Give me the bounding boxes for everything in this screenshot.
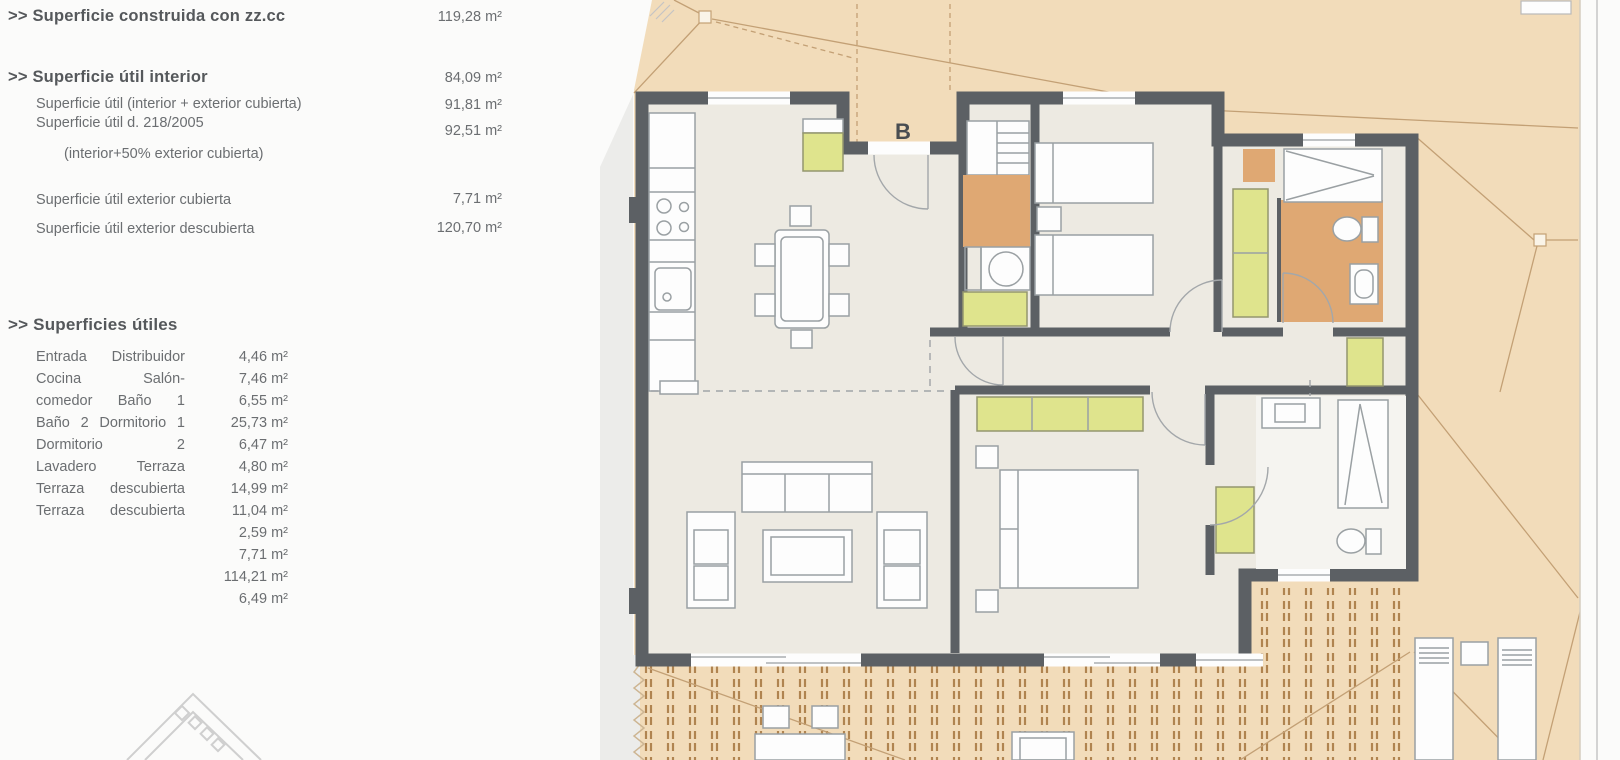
useful-areas-title: >> Superficies útiles	[8, 315, 178, 335]
roof-vertex-marker	[699, 11, 711, 23]
area-value: 6,47 m²	[170, 437, 288, 453]
kitchen	[649, 113, 695, 391]
row-label: (interior+50% exterior cubierta)	[64, 146, 263, 162]
chair	[812, 706, 838, 728]
area-value: 25,73 m²	[170, 415, 288, 431]
area-value: 7,71 m²	[170, 547, 288, 563]
area-value: 4,80 m²	[170, 459, 288, 475]
wardrobe	[977, 397, 1143, 431]
roof-skylight	[1521, 1, 1571, 14]
row-label: Superficie útil exterior descubierta	[36, 221, 254, 237]
chair	[791, 330, 812, 348]
row-label: Superficie útil exterior cubierta	[36, 192, 231, 208]
laundry	[963, 121, 1030, 326]
interior-title: >> Superficie útil interior	[8, 68, 208, 87]
surface-table: >> Superficie construida con zz.cc 119,2…	[0, 0, 560, 760]
area-value: 7,46 m²	[170, 371, 288, 387]
area-value: 4,46 m²	[170, 349, 288, 365]
sun-lounger	[1415, 638, 1453, 760]
double-bed	[1000, 470, 1138, 588]
row-label: Superficie útil (interior + exterior cub…	[36, 96, 302, 112]
wall-pier	[629, 197, 641, 223]
area-value: 2,59 m²	[170, 525, 288, 541]
area-label: Entrada Distribuidor	[36, 349, 185, 365]
chair	[829, 244, 849, 266]
chair	[790, 206, 811, 226]
entrance-letter: B	[895, 119, 911, 144]
closet	[967, 121, 1029, 175]
interior-value: 84,09 m²	[380, 70, 502, 86]
row-label: Superficie útil d. 218/2005	[36, 115, 204, 131]
row-value: 91,81 m²	[380, 97, 502, 113]
coffee-table	[763, 530, 852, 582]
toilet	[1337, 529, 1381, 554]
row-value: 120,70 m²	[380, 220, 502, 236]
row-value: 92,51 m²	[380, 123, 502, 139]
tv-bench	[660, 381, 698, 394]
nightstand	[1037, 207, 1061, 231]
side-table	[1461, 642, 1488, 665]
wardrobe	[963, 292, 1027, 326]
area-value: 6,55 m²	[170, 393, 288, 409]
outdoor-table	[755, 734, 845, 760]
wall-pier	[629, 588, 641, 614]
bidet	[1350, 264, 1378, 304]
area-label: Cocina Salón-	[36, 371, 185, 387]
area-value: 11,04 m²	[170, 503, 288, 519]
area-value: 114,21 m²	[170, 569, 288, 585]
vanity	[1262, 398, 1320, 428]
area-label: comedor Baño 1	[36, 393, 185, 409]
row-value: 7,71 m²	[380, 191, 502, 207]
area-label: Baño 2 Dormitorio 1	[36, 415, 185, 431]
area-label: Dormitorio 2	[36, 437, 185, 453]
area-value: 6,49 m²	[170, 591, 288, 607]
nightstand	[976, 590, 998, 612]
chair	[763, 706, 789, 728]
entry-closet	[803, 119, 843, 171]
wardrobe	[1347, 338, 1383, 386]
faint-corner-sketch	[115, 688, 275, 760]
area-value: 14,99 m²	[170, 481, 288, 497]
roof-vertex-marker	[1534, 234, 1546, 246]
sofa	[742, 462, 872, 512]
shower	[1284, 149, 1382, 202]
area-label: Terraza descubierta	[36, 503, 185, 519]
plan-sheet: >> Superficie construida con zz.cc 119,2…	[0, 0, 1620, 760]
chair	[755, 244, 775, 266]
outdoor-table	[1012, 732, 1074, 760]
summary-title: >> Superficie construida con zz.cc	[8, 7, 285, 26]
floor-plan: B	[600, 0, 1620, 760]
sheet-edge	[1580, 0, 1620, 760]
sun-lounger	[1498, 638, 1536, 760]
area-label: Terraza descubierta	[36, 481, 185, 497]
toilet	[1333, 217, 1378, 242]
chair	[829, 294, 849, 316]
summary-value: 119,28 m²	[380, 9, 502, 25]
shower	[1338, 400, 1388, 508]
nightstand	[976, 446, 998, 468]
area-label: Lavadero Terraza	[36, 459, 185, 475]
chair	[755, 294, 775, 316]
